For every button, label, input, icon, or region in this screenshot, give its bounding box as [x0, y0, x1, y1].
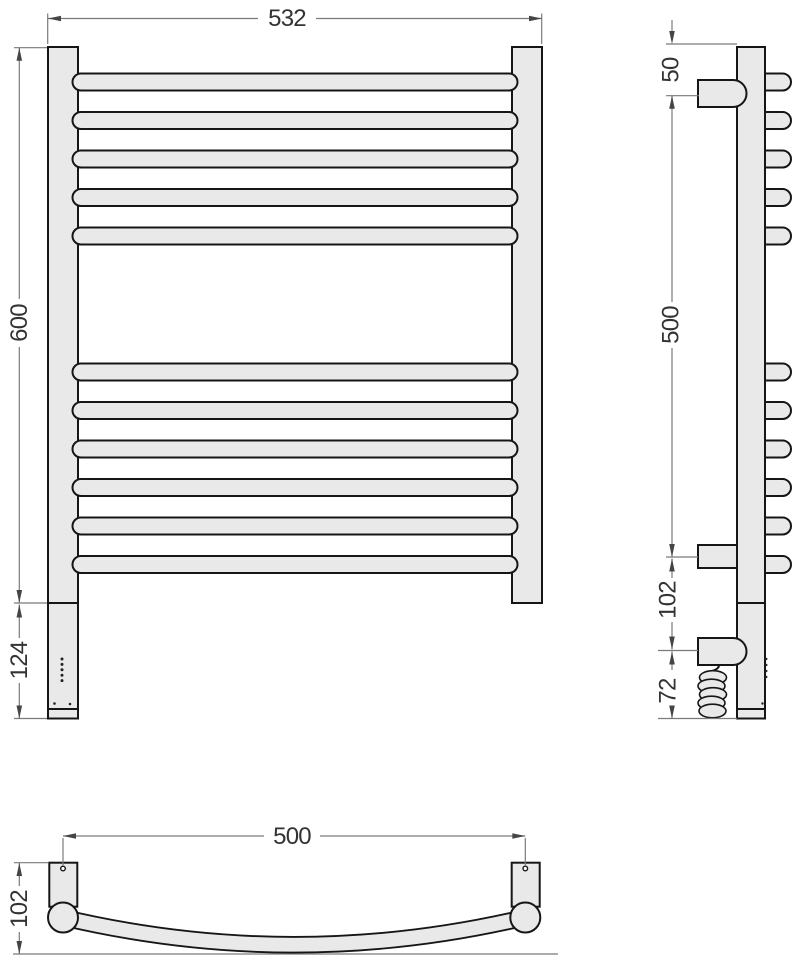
side-lower-bracket — [698, 545, 737, 568]
front-left-rail — [48, 47, 78, 603]
dim-label-600: 600 — [6, 304, 33, 342]
rung — [73, 518, 518, 535]
plan-left-rail-tube — [48, 903, 78, 933]
towel-rail-technical-drawing: 532 600 124 — [0, 0, 804, 970]
rung — [73, 364, 518, 381]
dim-side-bracket-to-heater: 102 — [655, 557, 699, 651]
plan-right-rail-tube — [510, 903, 540, 933]
dim-side-bracket-span: 500 — [658, 96, 685, 557]
screw-hole — [523, 866, 528, 871]
rung — [73, 402, 518, 419]
dim-front-height: 600 — [6, 48, 47, 603]
dim-label-124: 124 — [6, 641, 33, 679]
heater-connection-housing — [698, 638, 747, 665]
dim-label-532: 532 — [268, 5, 306, 32]
dim-label-102-side: 102 — [655, 581, 682, 619]
rung — [73, 228, 518, 245]
dim-label-102-plan: 102 — [6, 890, 33, 928]
dim-label-50: 50 — [658, 57, 685, 83]
rung — [73, 189, 518, 206]
front-view: 532 600 124 — [6, 5, 542, 719]
rung — [73, 74, 518, 91]
dim-plan-bracket-spacing: 500 — [63, 823, 525, 866]
coiled-power-cable — [698, 665, 727, 718]
side-upper-bracket — [698, 80, 747, 107]
dim-label-500-side: 500 — [658, 306, 685, 344]
plan-view: 500 102 — [6, 823, 558, 954]
technical-drawing-page: 532 600 124 — [0, 0, 804, 970]
screw-hole — [61, 866, 66, 871]
curved-rung-plan — [63, 918, 525, 945]
rung — [73, 112, 518, 129]
dim-plan-depth: 102 — [6, 863, 48, 954]
rung — [73, 441, 518, 458]
side-module-end-cap — [737, 709, 765, 719]
front-module-end-cap — [48, 709, 78, 719]
dim-front-width: 532 — [48, 5, 542, 44]
rung — [73, 556, 518, 573]
dim-label-500-plan: 500 — [273, 823, 311, 850]
rung — [73, 151, 518, 168]
dim-front-module: 124 — [6, 605, 47, 719]
side-view: 50 500 102 72 — [655, 20, 792, 719]
front-right-rail — [512, 47, 542, 603]
front-heater-module — [48, 603, 78, 709]
side-rail — [737, 47, 765, 603]
dim-label-72: 72 — [655, 678, 682, 704]
rung — [73, 479, 518, 496]
